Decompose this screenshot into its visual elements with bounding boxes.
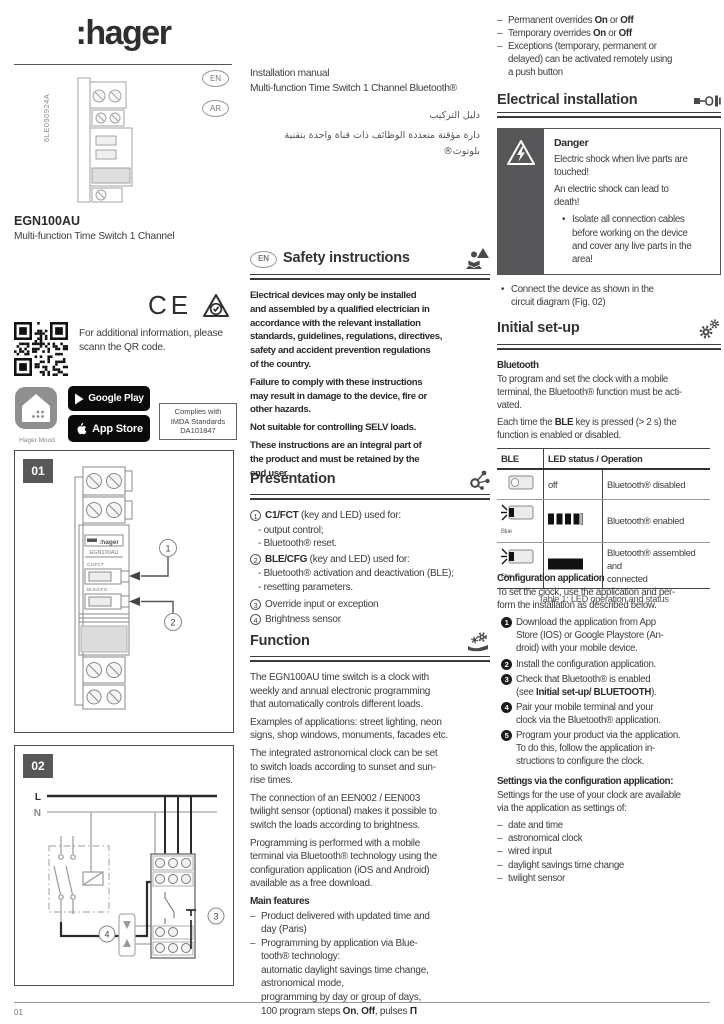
ce-mark: CE: [148, 290, 192, 321]
dash: –: [497, 845, 508, 858]
pulses-text: , pulses: [375, 1006, 410, 1017]
led-status-table: BLE LED status / Operation off Bluetooth…: [497, 448, 710, 590]
apple-icon: [75, 421, 88, 436]
bullet: •: [501, 283, 511, 309]
override-2-text: Temporary overrides: [508, 28, 593, 39]
document-code: 6LE090924A: [42, 72, 51, 142]
page-number: 01: [14, 1008, 23, 1017]
manual-page: :hager 6LE090924A EN AR EGN100AU Multi-f…: [0, 0, 724, 1024]
item1-key: C1/FCT: [265, 510, 299, 521]
function-p5: Programming is performed with a mobile t…: [250, 837, 490, 891]
config-step-1: 1 Download the application from App Stor…: [501, 616, 721, 655]
item1-number: 1: [250, 510, 261, 521]
app-store-label: App Store: [92, 423, 143, 435]
product-image: [70, 72, 154, 208]
danger-title: Danger: [554, 137, 716, 150]
warning-triangle-icon: [506, 139, 536, 166]
config-step-5: 5 Program your product via the applicati…: [501, 729, 721, 768]
presentation-rule: [250, 494, 490, 500]
presentation-item-3: 3 Override input or exception: [250, 598, 490, 612]
google-play-label: Google Play: [88, 393, 144, 404]
connect-bullet: • Connect the device as shown in the cir…: [501, 283, 721, 309]
dash: –: [497, 40, 508, 79]
bullet: •: [562, 213, 572, 265]
dash: –: [497, 27, 508, 40]
section-config-app: Configuration application To set the clo…: [497, 572, 721, 770]
item2-number: 2: [250, 554, 261, 565]
step-text: Install the configuration application.: [516, 658, 721, 671]
off-label: Off: [619, 28, 632, 39]
off-label: Off: [620, 15, 633, 26]
item3-number: 3: [250, 599, 261, 610]
figure-02-label: 02: [23, 754, 53, 778]
item2-key: BLE/CFG: [265, 554, 307, 565]
feature-1: – Product delivered with updated time an…: [250, 910, 490, 937]
danger-band: [498, 129, 544, 274]
step-number: 5: [501, 730, 512, 741]
feature-2-steps-pre: 100 program steps: [261, 1006, 343, 1017]
network-icon: [468, 470, 490, 490]
col-led-status: LED status / Operation: [544, 448, 711, 469]
fig01-callout-1: 1: [165, 544, 170, 554]
fig02-line-l: L: [35, 792, 41, 803]
fig01-btn2-label: BLE/CFG: [87, 587, 108, 593]
initial-heading: Initial set-up: [497, 322, 697, 335]
section-function: Function The EGN100AU time switch is a c…: [250, 632, 490, 1018]
settings-heading: Settings via the configuration applicati…: [497, 775, 721, 788]
function-rule: [250, 656, 490, 662]
electrical-heading: Electrical installation: [497, 94, 694, 107]
setting-text: astronomical clock: [508, 832, 721, 845]
connect-text: Connect the device as shown in the circu…: [511, 283, 721, 309]
led-state-off: off: [544, 469, 603, 500]
setting-text: daylight savings time change: [508, 859, 721, 872]
settings-intro: Settings for the use of your clock are a…: [497, 789, 721, 815]
config-heading: Configuration application: [497, 572, 721, 585]
table-row: off Bluetooth® disabled: [497, 469, 710, 500]
key-icon: [501, 473, 535, 493]
hager-mood-app: Hager Mood: [14, 386, 60, 444]
item1-text: (key and LED) used for:: [299, 510, 401, 521]
electrical-heading-row: Electrical installation: [497, 94, 721, 108]
function-heading-row: Function: [250, 632, 490, 652]
presentation-item-4: 4 Brightness sensor: [250, 613, 490, 627]
language-badge-en: EN: [202, 70, 229, 87]
presentation-item-2: 2 BLE/CFG (key and LED) used for:: [250, 553, 490, 567]
item2-text: (key and LED) used for:: [307, 554, 409, 565]
key-pressed-icon: [501, 503, 535, 523]
danger-p1: Electric shock when live parts are touch…: [554, 153, 716, 179]
led-solid-icon: [548, 558, 584, 570]
title-line1: Installation manual: [250, 66, 490, 81]
safety-heading-row: EN Safety instructions: [250, 248, 490, 270]
figure-01-drawing: :hager EGN100AU C1/FCT BLE/CFG 1 2: [15, 451, 233, 732]
arabic-line1: دليل التركيب: [250, 108, 480, 124]
qr-row: For additional information, please scann…: [14, 322, 237, 376]
ble-key-label: BLE: [555, 417, 573, 428]
item1-sub1: - output control;: [258, 524, 490, 538]
setting-item: – date and time: [497, 819, 721, 832]
function-heading: Function: [250, 635, 466, 649]
item4-number: 4: [250, 614, 261, 625]
section-safety: EN Safety instructions Electrical device…: [250, 248, 490, 484]
arabic-line2: دارة مؤقتة متعددة الوظائف ذات قناة واحدة…: [250, 128, 480, 160]
imda-compliance-box: Complies with IMDA Standards DA101847: [159, 403, 237, 440]
override-1: – Permanent overrides On or Off: [497, 14, 721, 27]
section-initial-setup: Initial set-up Bluetooth To program and …: [497, 318, 721, 606]
dash: –: [497, 819, 508, 832]
key-pressed-icon: [501, 547, 535, 567]
or-text: or: [607, 15, 620, 26]
step-text: Program your product via the application…: [516, 729, 721, 768]
fig01-btn1-label: C1/FCT: [87, 562, 104, 568]
item2-sub1: - Bluetooth® activation and deactivation…: [258, 567, 490, 581]
initial-heading-row: Initial set-up: [497, 318, 721, 340]
function-p1: The EGN100AU time switch is a clock with…: [250, 671, 490, 712]
gears-icon: [697, 318, 721, 340]
danger-bullet-text: Isolate all connection cables before wor…: [572, 213, 716, 265]
hager-mood-label: Hager Mood: [14, 437, 60, 444]
bluetooth-subheading: Bluetooth: [497, 359, 721, 372]
override-3-text: Exceptions (temporary, permanent or dela…: [508, 40, 721, 79]
plug-cable-icon: [694, 94, 721, 108]
override-2: – Temporary overrides On or Off: [497, 27, 721, 40]
function-p3: The integrated astronomical clock can be…: [250, 747, 490, 788]
bluetooth-p1: To program and set the clock with a mobi…: [497, 373, 721, 412]
language-badge-ar: AR: [202, 100, 229, 117]
or-text: or: [606, 28, 619, 39]
step-number: 1: [501, 617, 512, 628]
rcm-mark-icon: [201, 292, 231, 320]
setting-text: twilight sensor: [508, 872, 721, 885]
feature-1-text: Product delivered with updated time and …: [261, 910, 490, 937]
hager-logo: :hager: [14, 14, 232, 53]
feature-2-text: Programming by application via Blue- too…: [261, 938, 429, 1003]
step-number: 3: [501, 674, 512, 685]
override-1-text: Permanent overrides: [508, 15, 595, 26]
bluetooth-p2-pre: Each time the: [497, 417, 555, 428]
fig01-device-logo: :hager: [99, 539, 119, 546]
step-number: 4: [501, 702, 512, 713]
initial-rule: [497, 344, 721, 350]
led-blinking-icon: [548, 513, 584, 525]
presentation-item-1: 1 C1/FCT (key and LED) used for:: [250, 509, 490, 523]
title-arabic: دليل التركيب دارة مؤقتة متعددة الوظائف ذ…: [250, 108, 480, 160]
fig01-callout-2: 2: [170, 618, 175, 628]
step-text: Download the application from App Store …: [516, 616, 721, 655]
main-features-heading: Main features: [250, 895, 490, 909]
reading-person-icon: [464, 248, 490, 270]
config-intro: To set the clock, use the application an…: [497, 586, 721, 612]
hand-gears-icon: [466, 632, 490, 652]
play-icon: [74, 393, 84, 405]
config-step-4: 4 Pair your mobile terminal and your clo…: [501, 701, 721, 727]
google-play-badge: Google Play: [68, 386, 150, 411]
item1-sub2: - Bluetooth® reset.: [258, 537, 490, 551]
document-title: Installation manual Multi-function Time …: [250, 66, 490, 96]
hager-mood-icon: [14, 386, 58, 430]
safety-rule: [250, 274, 490, 280]
danger-p2: An electric shock can lead to death!: [554, 183, 716, 209]
dash: –: [497, 832, 508, 845]
danger-box: Danger Electric shock when live parts ar…: [497, 128, 721, 275]
safety-heading: Safety instructions: [283, 252, 464, 266]
electrical-rule: [497, 112, 721, 118]
title-line2: Multi-function Time Switch 1 Channel Blu…: [250, 81, 490, 96]
fig02-line-n: N: [34, 808, 41, 819]
item3-text: Override input or exception: [265, 598, 378, 612]
col-ble: BLE: [497, 448, 544, 469]
presentation-heading-row: Presentation: [250, 470, 490, 490]
feature-2: – Programming by application via Blue- t…: [250, 937, 490, 1019]
item2-sub2: - resetting parameters.: [258, 581, 490, 595]
dash: –: [497, 14, 508, 27]
led-desc: Bluetooth® disabled: [603, 469, 711, 500]
safety-lang-badge: EN: [250, 251, 277, 268]
imda-line1: Complies with: [165, 407, 231, 417]
product-name: EGN100AU: [14, 214, 80, 228]
fig01-device-name: EGN100AU: [90, 550, 119, 556]
section-settings: Settings via the configuration applicati…: [497, 775, 721, 885]
item4-text: Brightness sensor: [265, 613, 341, 627]
step-number: 2: [501, 659, 512, 670]
step-3-end: ).: [651, 687, 656, 698]
safety-p2: Failure to comply with these instruction…: [250, 376, 490, 417]
qr-caption: For additional information, please scann…: [79, 327, 237, 376]
feature-2-on: On: [343, 1006, 356, 1017]
danger-block: Danger Electric shock when live parts ar…: [497, 128, 721, 309]
setting-item: – twilight sensor: [497, 872, 721, 885]
overrides-list: – Permanent overrides On or Off – Tempor…: [497, 14, 721, 79]
dash: –: [250, 910, 261, 937]
on-label: On: [595, 15, 608, 26]
fig02-callout-4: 4: [104, 930, 109, 940]
setting-text: wired input: [508, 845, 721, 858]
figure-01-label: 01: [23, 459, 53, 483]
safety-p3: Not suitable for controlling SELV loads.: [250, 421, 490, 435]
feature-2-off: Off: [361, 1006, 375, 1017]
app-store-badge: App Store: [68, 415, 150, 442]
function-p2: Examples of applications: street lightin…: [250, 716, 490, 743]
on-label: On: [593, 28, 606, 39]
config-step-2: 2 Install the configuration application.: [501, 658, 721, 671]
safety-p1: Electrical devices may only be installed…: [250, 289, 490, 372]
danger-bullet: • Isolate all connection cables before w…: [562, 213, 716, 265]
dash: –: [497, 872, 508, 885]
store-badges: Google Play App Store: [68, 386, 150, 442]
qr-code: [14, 322, 68, 376]
setting-item: – daylight savings time change: [497, 859, 721, 872]
pulse-symbol: Π: [410, 1006, 417, 1017]
setting-item: – wired input: [497, 845, 721, 858]
config-step-3: 3 Check that Bluetooth® is enabled (see …: [501, 673, 721, 699]
table-row: Blue Bluetooth® enabled: [497, 499, 710, 542]
figure-02: 02 L N: [14, 745, 234, 986]
dash: –: [250, 937, 261, 1019]
presentation-heading: Presentation: [250, 473, 468, 487]
step-text: Pair your mobile terminal and your clock…: [516, 701, 721, 727]
product-description: Multi-function Time Switch 1 Channel: [14, 231, 174, 242]
imda-line3: DA101847: [165, 426, 231, 436]
section-electrical: Electrical installation: [497, 94, 721, 127]
section-presentation: Presentation 1 C1/FCT (key and LED) used…: [250, 470, 490, 628]
setting-item: – astronomical clock: [497, 832, 721, 845]
figure-02-circuit: L N: [15, 746, 233, 985]
setting-text: date and time: [508, 819, 721, 832]
imda-line2: IMDA Standards: [165, 417, 231, 427]
led-desc: Bluetooth® enabled: [603, 499, 711, 542]
fig02-callout-3: 3: [213, 912, 218, 922]
certification-marks: CE: [148, 290, 231, 321]
logo-divider: [14, 64, 232, 65]
app-badges-row: Hager Mood Google Play App Store Complie…: [14, 386, 237, 444]
blue-label: Blue: [501, 526, 539, 539]
figure-01: 01: [14, 450, 234, 733]
override-3: – Exceptions (temporary, permanent or de…: [497, 40, 721, 79]
step-3-ref: Initial set-up/ BLUETOOTH: [536, 687, 651, 698]
function-p4: The connection of an EEN002 / EEN003 twi…: [250, 792, 490, 833]
table-header-row: BLE LED status / Operation: [497, 448, 710, 469]
footer-rule: [14, 1002, 710, 1003]
dash: –: [497, 859, 508, 872]
